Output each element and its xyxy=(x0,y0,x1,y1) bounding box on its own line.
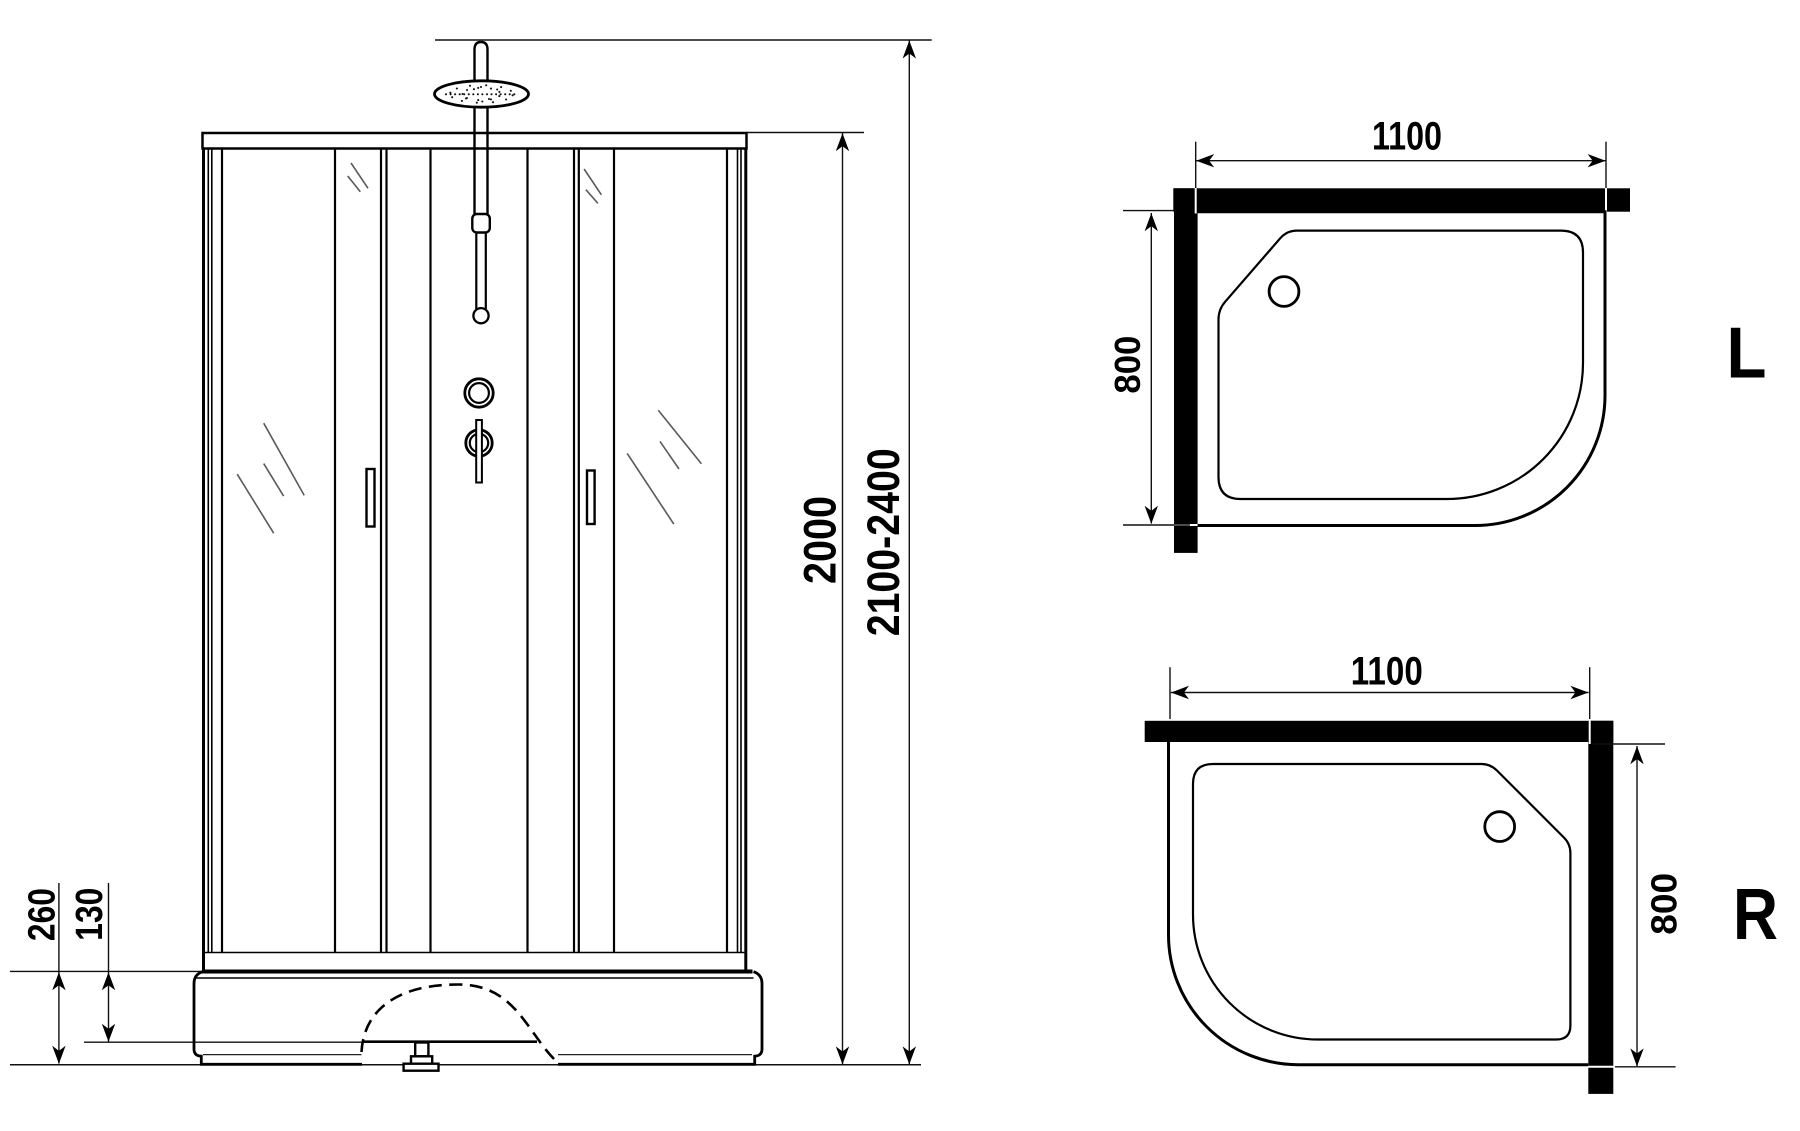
svg-text:1100: 1100 xyxy=(1351,650,1423,694)
svg-text:260: 260 xyxy=(22,888,64,941)
svg-text:1100: 1100 xyxy=(1372,115,1442,159)
svg-text:800: 800 xyxy=(1644,873,1685,935)
svg-text:130: 130 xyxy=(69,888,111,941)
svg-text:2100-2400: 2100-2400 xyxy=(858,448,909,636)
svg-text:2000: 2000 xyxy=(795,496,846,584)
svg-text:L: L xyxy=(1727,313,1767,393)
svg-text:R: R xyxy=(1733,875,1778,955)
svg-text:800: 800 xyxy=(1107,336,1148,394)
